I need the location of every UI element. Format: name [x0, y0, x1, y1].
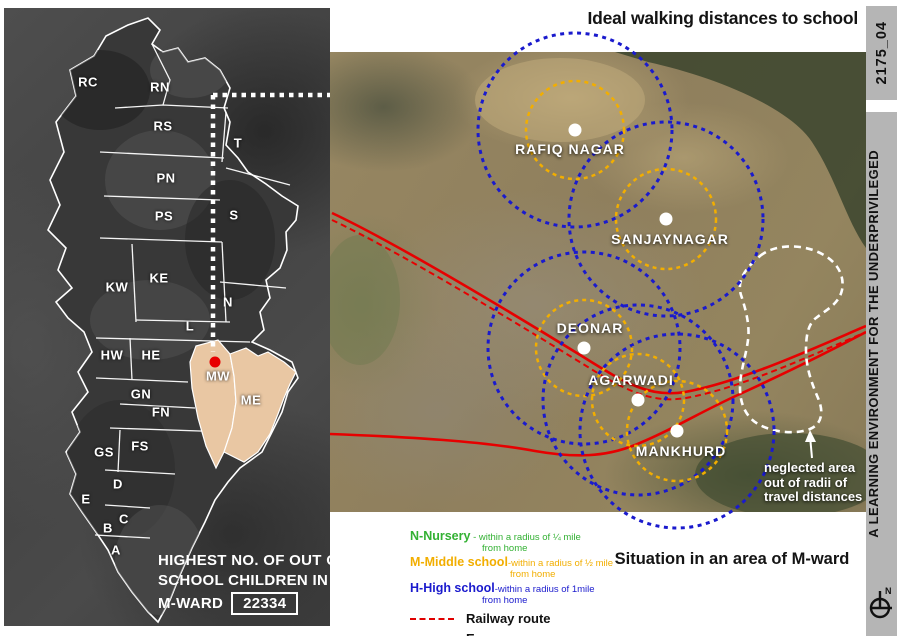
- note-line2: out of radii of: [764, 476, 862, 491]
- legend-nursery: N-Nursery - within a radius of ¼ mile fr…: [410, 529, 640, 554]
- caption-line2: SCHOOL CHILDREN IN: [158, 571, 348, 591]
- ward-label-t: T: [234, 136, 242, 151]
- situation-title: Situation in an area of M-ward: [604, 550, 860, 569]
- ward-label-he: HE: [141, 348, 160, 363]
- left-map-caption: HIGHEST NO. OF OUT OF SCHOOL CHILDREN IN…: [158, 551, 348, 615]
- caption-line1: HIGHEST NO. OF OUT OF: [158, 551, 348, 571]
- ward-label-d: D: [113, 477, 123, 492]
- ward-label-c: C: [119, 512, 129, 527]
- legend-nursery-sep: -: [470, 532, 478, 543]
- settlement-label: SANJAYNAGAR: [611, 231, 729, 247]
- project-title: A LEARNING ENVIRONMENT FOR THE UNDERPRIV…: [866, 150, 881, 538]
- legend: N-Nursery - within a radius of ¼ mile fr…: [410, 529, 640, 636]
- note-line1: neglected area: [764, 461, 862, 476]
- ward-label-ps: PS: [155, 209, 173, 224]
- ward-label-hw: HW: [101, 348, 124, 363]
- ward-label-kw: KW: [106, 280, 129, 295]
- ward-label-gn: GN: [131, 387, 152, 402]
- settlement-label: DEONAR: [557, 320, 624, 336]
- north-arrow-icon: N: [868, 582, 896, 626]
- legend-railway-label: Railway route: [466, 611, 551, 626]
- settlement-label: AGARWADI: [588, 372, 674, 388]
- ward-label-rs: RS: [153, 119, 172, 134]
- legend-expressway-label: Expressway: [466, 631, 541, 636]
- legend-middle: M-Middle school-within a radius of ½ mil…: [410, 555, 640, 580]
- legend-expressway-row: Expressway: [410, 631, 640, 636]
- ward-label-ke: KE: [149, 271, 168, 286]
- note-line3: travel distances: [764, 490, 862, 505]
- ward-label-a: A: [111, 543, 121, 558]
- caption-line3: M-WARD: [158, 594, 223, 614]
- ward-label-s: S: [229, 208, 238, 223]
- legend-high: H-High school-within a radius of 1mile f…: [410, 581, 640, 606]
- legend-middle-desc: within a radius of ½ mile: [511, 558, 613, 569]
- project-title-strip: A LEARNING ENVIRONMENT FOR THE UNDERPRIV…: [866, 112, 897, 636]
- ward-label-gs: GS: [94, 445, 114, 460]
- ward-label-pn: PN: [156, 171, 175, 186]
- legend-high-key: H-High school: [410, 581, 495, 595]
- ward-label-l: L: [186, 319, 194, 334]
- legend-railway-row: Railway route: [410, 611, 640, 626]
- ward-label-mw: MW: [206, 369, 230, 384]
- labels-layer: Ideal walking distances to school Situat…: [0, 0, 900, 636]
- legend-high-home: from home: [410, 595, 640, 606]
- ward-label-rn: RN: [150, 80, 170, 95]
- ward-label-n: N: [223, 295, 233, 310]
- ward-label-rc: RC: [78, 75, 98, 90]
- settlement-label: RAFIQ NAGAR: [515, 141, 625, 157]
- legend-nursery-desc: within a radius of ¼ mile: [479, 532, 581, 543]
- legend-high-desc: within a radius of 1mile: [498, 584, 595, 595]
- legend-middle-key: M-Middle school: [410, 555, 508, 569]
- ward-label-fs: FS: [131, 439, 149, 454]
- railway-swatch: [410, 618, 454, 620]
- project-code: 2175_04: [874, 21, 890, 84]
- project-code-strip: 2175_04: [866, 6, 897, 100]
- legend-middle-home: from home: [410, 569, 640, 580]
- legend-nursery-home: from home: [410, 543, 640, 554]
- neglected-area-note: neglected area out of radii of travel di…: [764, 461, 862, 505]
- ward-label-b: B: [103, 521, 113, 536]
- settlement-label: MANKHURD: [636, 443, 726, 459]
- legend-nursery-key: N-Nursery: [410, 529, 470, 543]
- ward-label-e: E: [81, 492, 90, 507]
- ward-label-fn: FN: [152, 405, 170, 420]
- right-map-title: Ideal walking distances to school: [587, 8, 858, 29]
- poster-page: Ideal walking distances to school Situat…: [0, 0, 900, 636]
- north-label: N: [885, 586, 892, 596]
- out-of-school-count: 22334: [231, 592, 298, 615]
- ward-label-me: ME: [241, 393, 262, 408]
